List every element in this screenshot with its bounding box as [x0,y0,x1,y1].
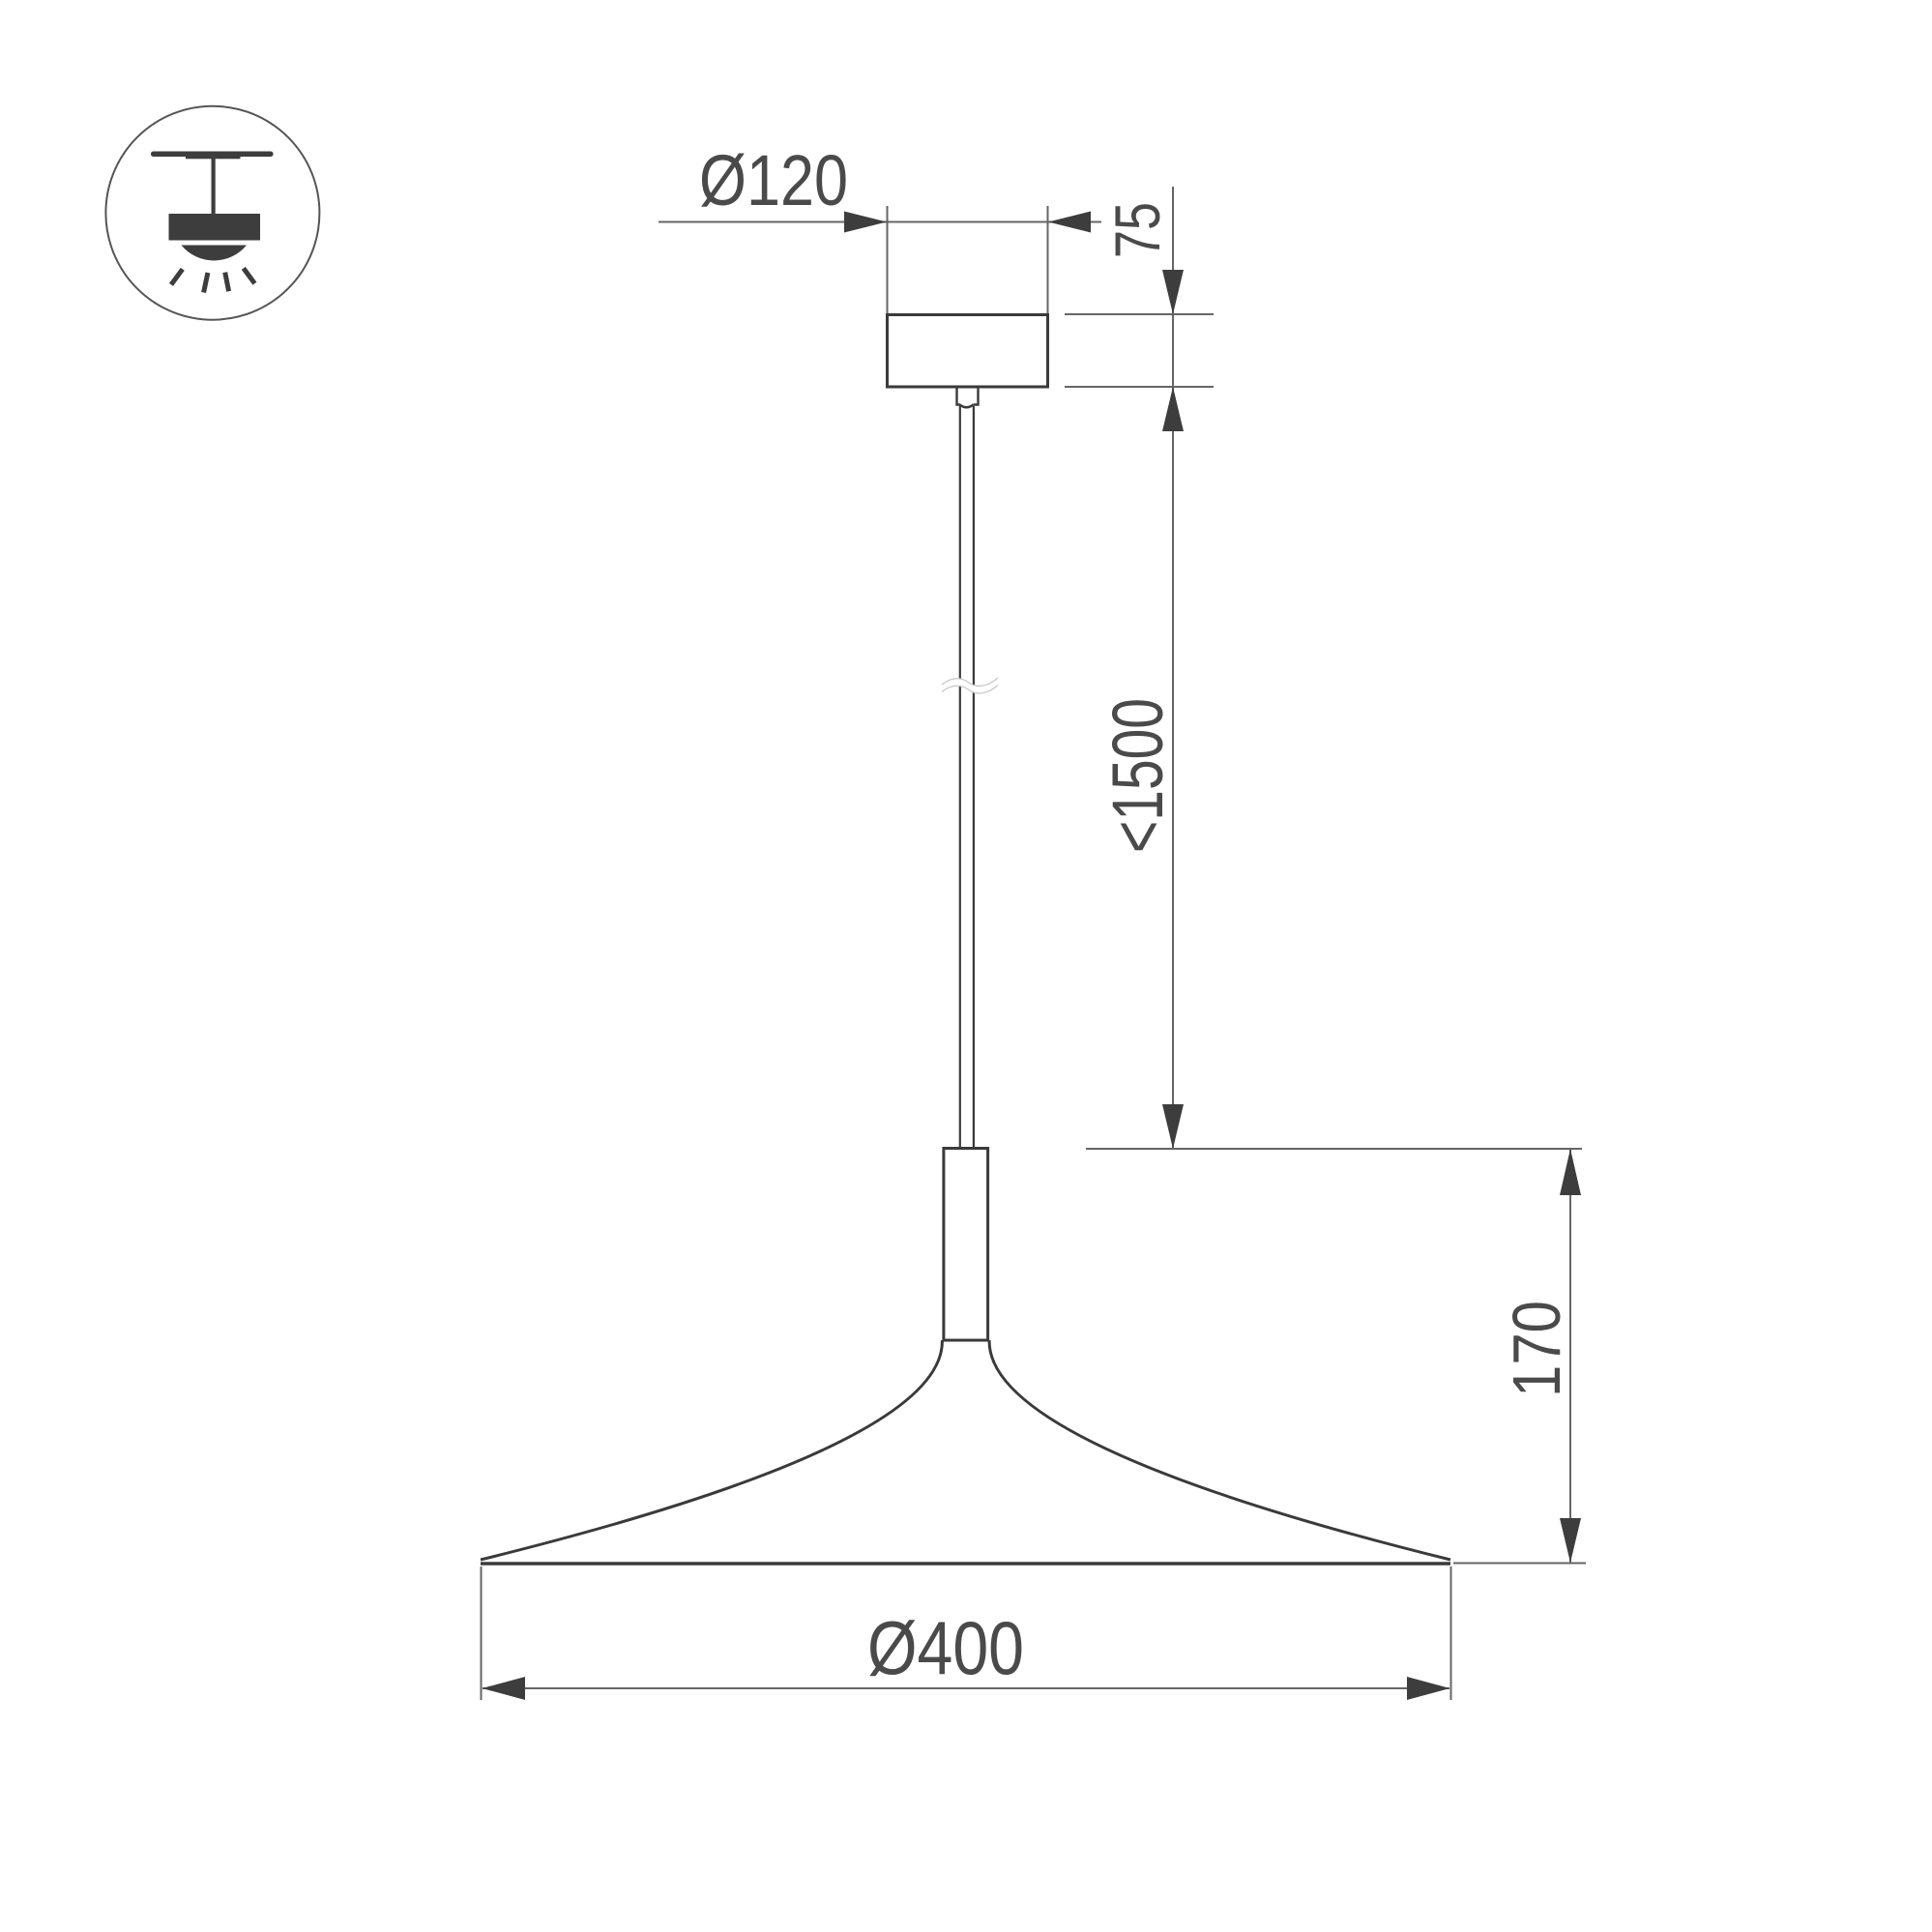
svg-text:75: 75 [1101,202,1173,258]
svg-text:Ø120: Ø120 [699,140,848,220]
svg-text:Ø400: Ø400 [867,1605,1024,1690]
svg-text:<1500: <1500 [1098,698,1178,853]
svg-text:170: 170 [1499,1301,1574,1397]
